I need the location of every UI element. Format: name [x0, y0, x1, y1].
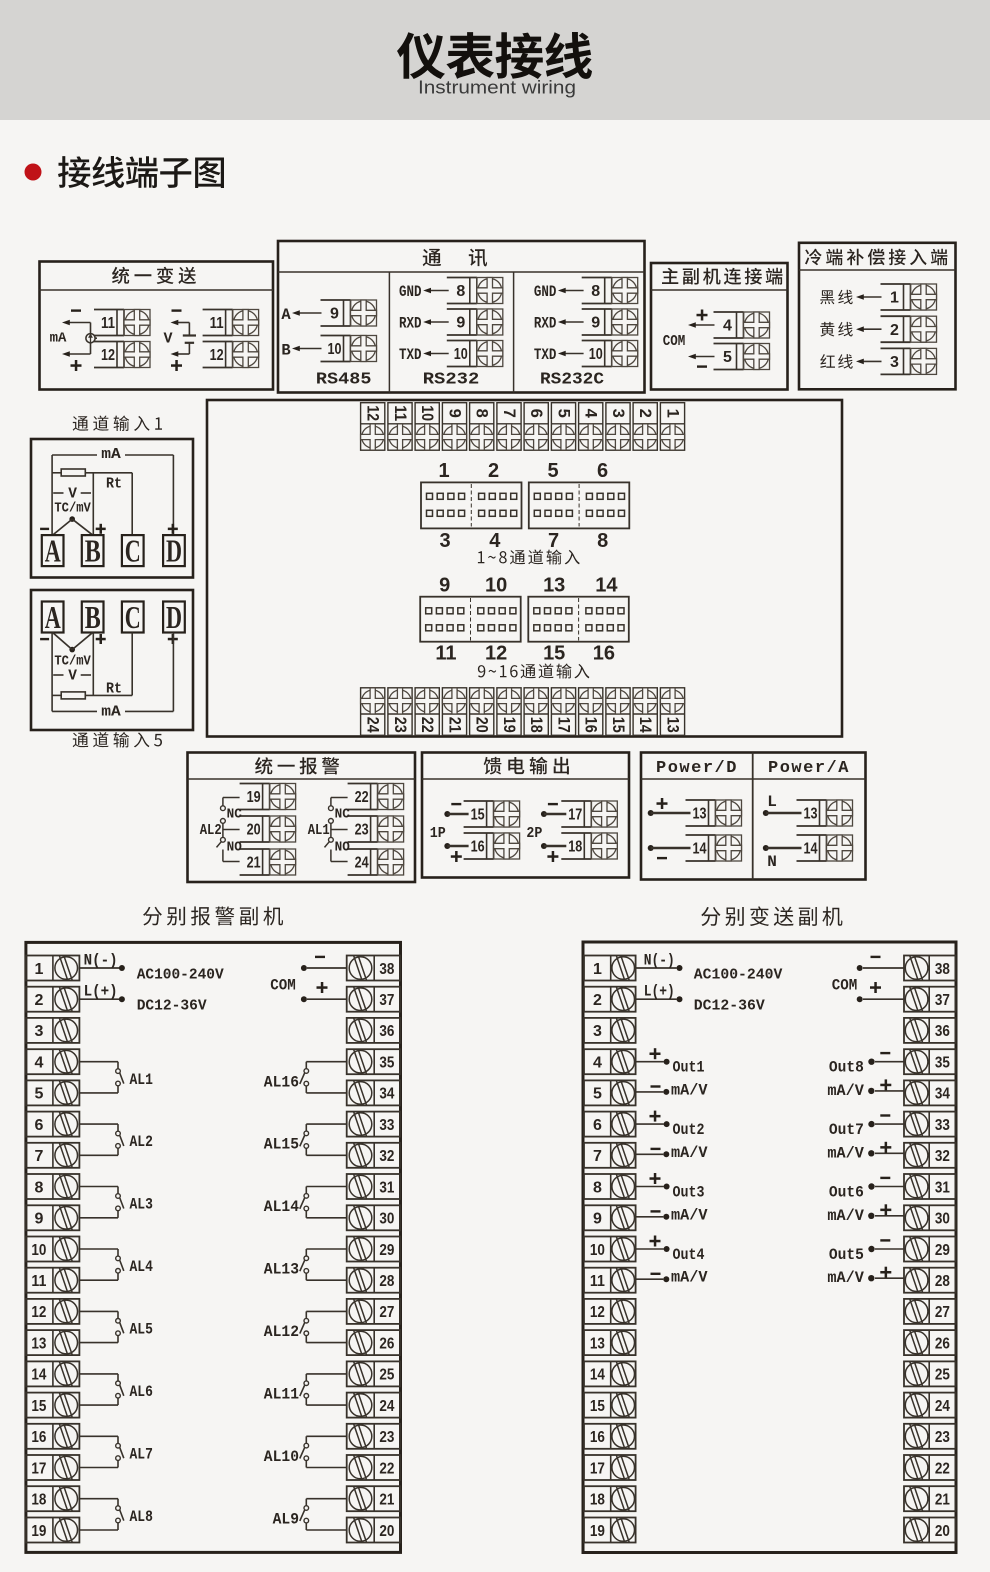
- svg-text:25: 25: [935, 1367, 950, 1384]
- svg-text:AL13: AL13: [264, 1261, 299, 1279]
- svg-text:AL16: AL16: [264, 1073, 299, 1091]
- svg-text:AL8: AL8: [130, 1508, 153, 1526]
- svg-text:23: 23: [379, 1429, 394, 1446]
- svg-text:36: 36: [935, 1023, 950, 1040]
- svg-text:Out6: Out6: [829, 1184, 864, 1202]
- svg-text:AC100-240V: AC100-240V: [137, 967, 224, 984]
- svg-text:6: 6: [527, 409, 545, 418]
- svg-text:30: 30: [935, 1211, 950, 1228]
- svg-text:L: L: [767, 793, 777, 811]
- svg-text:19: 19: [31, 1523, 46, 1540]
- svg-text:5: 5: [555, 409, 573, 418]
- svg-text:28: 28: [935, 1273, 950, 1290]
- svg-text:24: 24: [379, 1398, 394, 1415]
- svg-text:24: 24: [364, 717, 382, 734]
- svg-text:20: 20: [379, 1523, 394, 1540]
- svg-text:17: 17: [590, 1460, 605, 1477]
- svg-text:19: 19: [500, 717, 518, 733]
- svg-text:15: 15: [543, 643, 565, 665]
- svg-text:11: 11: [590, 1273, 605, 1290]
- svg-text:GND: GND: [399, 283, 422, 301]
- svg-text:37: 37: [379, 992, 394, 1009]
- svg-text:5: 5: [34, 1086, 43, 1103]
- svg-text:22: 22: [355, 789, 369, 806]
- svg-text:2: 2: [593, 992, 602, 1009]
- svg-text:mA/V: mA/V: [827, 1207, 864, 1225]
- svg-text:20: 20: [935, 1523, 950, 1540]
- svg-text:AL6: AL6: [130, 1383, 153, 1401]
- svg-text:2: 2: [636, 409, 654, 418]
- svg-text:20: 20: [247, 822, 261, 839]
- svg-text:31: 31: [379, 1179, 394, 1196]
- svg-text:32: 32: [935, 1148, 950, 1165]
- svg-text:2P: 2P: [526, 825, 542, 842]
- svg-text:AL12: AL12: [264, 1323, 299, 1341]
- svg-text:9: 9: [34, 1211, 43, 1228]
- svg-text:N(-): N(-): [644, 952, 675, 970]
- svg-text:13: 13: [693, 806, 707, 823]
- svg-text:3: 3: [609, 409, 627, 418]
- svg-text:AL15: AL15: [264, 1136, 299, 1154]
- svg-text:29: 29: [935, 1242, 950, 1259]
- svg-text:AL4: AL4: [130, 1258, 153, 1276]
- svg-text:32: 32: [379, 1148, 394, 1165]
- svg-text:4: 4: [723, 318, 732, 335]
- svg-text:AL3: AL3: [130, 1196, 153, 1214]
- svg-text:9: 9: [593, 1211, 602, 1228]
- svg-text:1: 1: [34, 961, 43, 978]
- svg-text:7: 7: [593, 1148, 602, 1165]
- svg-text:14: 14: [590, 1367, 605, 1384]
- svg-text:13: 13: [543, 575, 565, 597]
- svg-text:mA: mA: [50, 331, 67, 347]
- svg-text:24: 24: [355, 855, 369, 872]
- svg-text:RS232C: RS232C: [540, 370, 604, 389]
- svg-text:C: C: [125, 533, 141, 569]
- svg-text:15: 15: [31, 1398, 46, 1415]
- svg-text:25: 25: [379, 1367, 394, 1384]
- svg-text:Out7: Out7: [829, 1121, 864, 1139]
- svg-text:D: D: [166, 599, 182, 635]
- svg-text:Out3: Out3: [673, 1184, 705, 1202]
- svg-text:21: 21: [935, 1492, 950, 1509]
- svg-text:11: 11: [31, 1273, 46, 1290]
- svg-text:9: 9: [330, 306, 339, 323]
- svg-text:N(-): N(-): [84, 952, 118, 970]
- svg-text:26: 26: [935, 1335, 950, 1352]
- svg-text:14: 14: [636, 717, 654, 734]
- svg-text:1: 1: [890, 290, 899, 307]
- svg-text:24: 24: [935, 1398, 950, 1415]
- svg-text:AL5: AL5: [130, 1321, 153, 1339]
- svg-text:28: 28: [379, 1273, 394, 1290]
- svg-text:34: 34: [935, 1086, 950, 1103]
- svg-text:21: 21: [446, 717, 464, 733]
- svg-text:AL10: AL10: [264, 1448, 299, 1466]
- svg-text:Out2: Out2: [673, 1121, 705, 1139]
- svg-text:10: 10: [589, 346, 603, 363]
- svg-text:18: 18: [568, 839, 582, 856]
- svg-text:12: 12: [485, 643, 507, 665]
- svg-text:15: 15: [471, 807, 485, 824]
- svg-text:Rt: Rt: [106, 476, 122, 493]
- svg-text:34: 34: [379, 1086, 394, 1103]
- svg-text:mA/V: mA/V: [827, 1144, 864, 1162]
- svg-text:7: 7: [34, 1148, 43, 1165]
- svg-text:13: 13: [590, 1335, 605, 1352]
- svg-text:AC100-240V: AC100-240V: [694, 967, 783, 984]
- svg-text:9: 9: [456, 315, 465, 332]
- svg-text:5: 5: [547, 460, 558, 482]
- svg-text:27: 27: [935, 1304, 950, 1321]
- svg-text:13: 13: [664, 717, 682, 733]
- svg-text:14: 14: [693, 841, 707, 858]
- svg-text:B: B: [281, 342, 290, 360]
- svg-text:8: 8: [591, 283, 600, 300]
- svg-text:9: 9: [591, 315, 600, 332]
- svg-text:3: 3: [890, 354, 899, 371]
- svg-text:23: 23: [355, 822, 369, 839]
- svg-text:12: 12: [590, 1304, 605, 1321]
- svg-text:16: 16: [590, 1429, 605, 1446]
- svg-text:18: 18: [31, 1492, 46, 1509]
- svg-text:Instrument wiring: Instrument wiring: [418, 77, 576, 98]
- svg-text:AL2: AL2: [200, 822, 222, 839]
- svg-text:2: 2: [488, 460, 499, 482]
- svg-text:14: 14: [31, 1367, 46, 1384]
- svg-text:23: 23: [935, 1429, 950, 1446]
- svg-text:RXD: RXD: [399, 315, 422, 333]
- svg-text:19: 19: [247, 789, 261, 806]
- svg-text:NC: NC: [335, 808, 350, 823]
- svg-text:8: 8: [473, 409, 491, 418]
- svg-text:8: 8: [593, 1179, 602, 1196]
- svg-text:V: V: [68, 669, 77, 685]
- svg-text:AL14: AL14: [264, 1198, 299, 1216]
- svg-text:9: 9: [439, 575, 450, 597]
- svg-text:4: 4: [489, 530, 501, 552]
- svg-text:26: 26: [379, 1335, 394, 1352]
- svg-text:DC12-36V: DC12-36V: [694, 998, 765, 1015]
- svg-text:14: 14: [595, 575, 618, 597]
- svg-text:TXD: TXD: [534, 346, 557, 364]
- svg-text:6: 6: [34, 1117, 43, 1134]
- svg-text:RS232: RS232: [423, 370, 480, 389]
- svg-text:1: 1: [438, 460, 449, 482]
- svg-text:10: 10: [485, 575, 507, 597]
- svg-text:C: C: [125, 599, 141, 635]
- svg-text:10: 10: [454, 346, 468, 363]
- svg-text:33: 33: [379, 1117, 394, 1134]
- svg-text:13: 13: [804, 806, 818, 823]
- svg-text:mA/V: mA/V: [671, 1144, 708, 1162]
- svg-text:4: 4: [34, 1055, 43, 1072]
- svg-text:3: 3: [593, 1023, 602, 1040]
- svg-text:Power/D: Power/D: [656, 759, 738, 778]
- svg-text:37: 37: [935, 992, 950, 1009]
- svg-text:8: 8: [456, 283, 465, 300]
- svg-text:23: 23: [391, 717, 409, 733]
- svg-text:17: 17: [555, 717, 573, 733]
- svg-text:22: 22: [935, 1460, 950, 1477]
- svg-text:2: 2: [890, 322, 899, 339]
- svg-text:35: 35: [935, 1055, 950, 1072]
- svg-text:1: 1: [664, 409, 682, 418]
- svg-text:B: B: [85, 599, 101, 635]
- svg-text:mA/V: mA/V: [671, 1206, 708, 1224]
- svg-text:AL9: AL9: [273, 1510, 299, 1528]
- svg-text:DC12-36V: DC12-36V: [137, 998, 207, 1015]
- svg-text:21: 21: [379, 1492, 394, 1509]
- svg-text:AL1: AL1: [130, 1071, 153, 1089]
- svg-text:7: 7: [500, 409, 518, 418]
- svg-text:11: 11: [210, 315, 224, 332]
- svg-text:COM: COM: [832, 977, 858, 995]
- svg-text:NC: NC: [227, 808, 242, 823]
- svg-text:A: A: [281, 306, 291, 324]
- svg-text:11: 11: [391, 405, 409, 421]
- svg-text:TC/mV: TC/mV: [54, 654, 91, 670]
- svg-text:8: 8: [34, 1179, 43, 1196]
- svg-text:mA/V: mA/V: [827, 1269, 864, 1287]
- svg-text:13: 13: [31, 1335, 46, 1352]
- svg-text:L(+): L(+): [84, 983, 118, 1001]
- svg-text:6: 6: [597, 460, 608, 482]
- svg-text:38: 38: [379, 961, 394, 978]
- svg-text:RS485: RS485: [316, 370, 372, 389]
- svg-text:10: 10: [31, 1242, 46, 1259]
- svg-text:mA: mA: [101, 447, 121, 463]
- svg-text:N: N: [767, 853, 777, 871]
- svg-text:16: 16: [471, 839, 485, 856]
- svg-text:12: 12: [101, 347, 115, 364]
- svg-text:11: 11: [101, 315, 115, 332]
- svg-text:A: A: [45, 599, 61, 635]
- svg-text:Out5: Out5: [829, 1246, 864, 1264]
- svg-text:27: 27: [379, 1304, 394, 1321]
- svg-text:21: 21: [247, 855, 261, 872]
- svg-text:22: 22: [418, 717, 436, 733]
- svg-text:1: 1: [593, 961, 602, 978]
- svg-text:4: 4: [582, 409, 600, 419]
- svg-text:D: D: [166, 533, 182, 569]
- svg-text:B: B: [85, 533, 101, 569]
- svg-text:NO: NO: [227, 841, 242, 856]
- svg-text:18: 18: [590, 1492, 605, 1509]
- svg-text:38: 38: [935, 961, 950, 978]
- svg-text:16: 16: [31, 1429, 46, 1446]
- svg-text:8: 8: [597, 530, 608, 552]
- svg-text:6: 6: [593, 1117, 602, 1134]
- svg-text:10: 10: [328, 341, 342, 358]
- svg-text:5: 5: [723, 349, 732, 366]
- svg-text:GND: GND: [534, 283, 557, 301]
- svg-text:36: 36: [379, 1023, 394, 1040]
- svg-text:2: 2: [34, 992, 43, 1009]
- svg-text:mA/V: mA/V: [827, 1082, 864, 1100]
- svg-text:COM: COM: [663, 334, 686, 350]
- svg-text:10: 10: [590, 1242, 605, 1259]
- svg-text:L(+): L(+): [644, 983, 675, 1001]
- svg-text:TXD: TXD: [399, 346, 422, 364]
- svg-text:1P: 1P: [430, 825, 446, 842]
- svg-text:3: 3: [439, 530, 450, 552]
- svg-text:7: 7: [548, 530, 559, 552]
- svg-text:AL11: AL11: [264, 1386, 299, 1404]
- svg-text:16: 16: [582, 717, 600, 733]
- svg-text:10: 10: [418, 405, 436, 421]
- svg-text:Out8: Out8: [829, 1059, 864, 1077]
- svg-text:20: 20: [473, 717, 491, 733]
- svg-text:A: A: [45, 533, 61, 569]
- svg-text:19: 19: [590, 1523, 605, 1540]
- svg-text:35: 35: [379, 1055, 394, 1072]
- svg-text:14: 14: [804, 841, 818, 858]
- svg-text:COM: COM: [270, 977, 296, 995]
- svg-text:AL1: AL1: [308, 822, 330, 839]
- svg-text:AL7: AL7: [130, 1445, 153, 1463]
- svg-text:30: 30: [379, 1211, 394, 1228]
- svg-text:16: 16: [593, 643, 615, 665]
- svg-text:12: 12: [210, 347, 224, 364]
- svg-text:15: 15: [590, 1398, 605, 1415]
- svg-text:mA/V: mA/V: [671, 1081, 708, 1099]
- svg-text:3: 3: [34, 1023, 43, 1040]
- svg-text:15: 15: [609, 717, 627, 733]
- svg-text:AL2: AL2: [130, 1133, 153, 1151]
- svg-text:NO: NO: [335, 841, 350, 856]
- svg-text:18: 18: [527, 717, 545, 733]
- svg-text:Out4: Out4: [673, 1246, 705, 1264]
- svg-text:11: 11: [435, 643, 456, 665]
- svg-text:31: 31: [935, 1179, 950, 1196]
- svg-text:22: 22: [379, 1460, 394, 1477]
- svg-text:33: 33: [935, 1117, 950, 1134]
- svg-text:9: 9: [446, 409, 464, 418]
- svg-text:mA/V: mA/V: [671, 1269, 708, 1287]
- svg-text:V: V: [163, 331, 172, 348]
- svg-text:RXD: RXD: [534, 315, 557, 333]
- svg-text:17: 17: [568, 807, 582, 824]
- svg-text:17: 17: [31, 1460, 46, 1477]
- svg-text:12: 12: [31, 1304, 46, 1321]
- svg-text:4: 4: [593, 1055, 602, 1072]
- svg-text:29: 29: [379, 1242, 394, 1259]
- svg-text:TC/mV: TC/mV: [54, 501, 91, 517]
- svg-text:Out1: Out1: [673, 1059, 705, 1077]
- svg-text:Power/A: Power/A: [768, 759, 850, 778]
- svg-text:mA: mA: [101, 705, 121, 721]
- svg-text:12: 12: [364, 405, 382, 421]
- svg-text:5: 5: [593, 1086, 602, 1103]
